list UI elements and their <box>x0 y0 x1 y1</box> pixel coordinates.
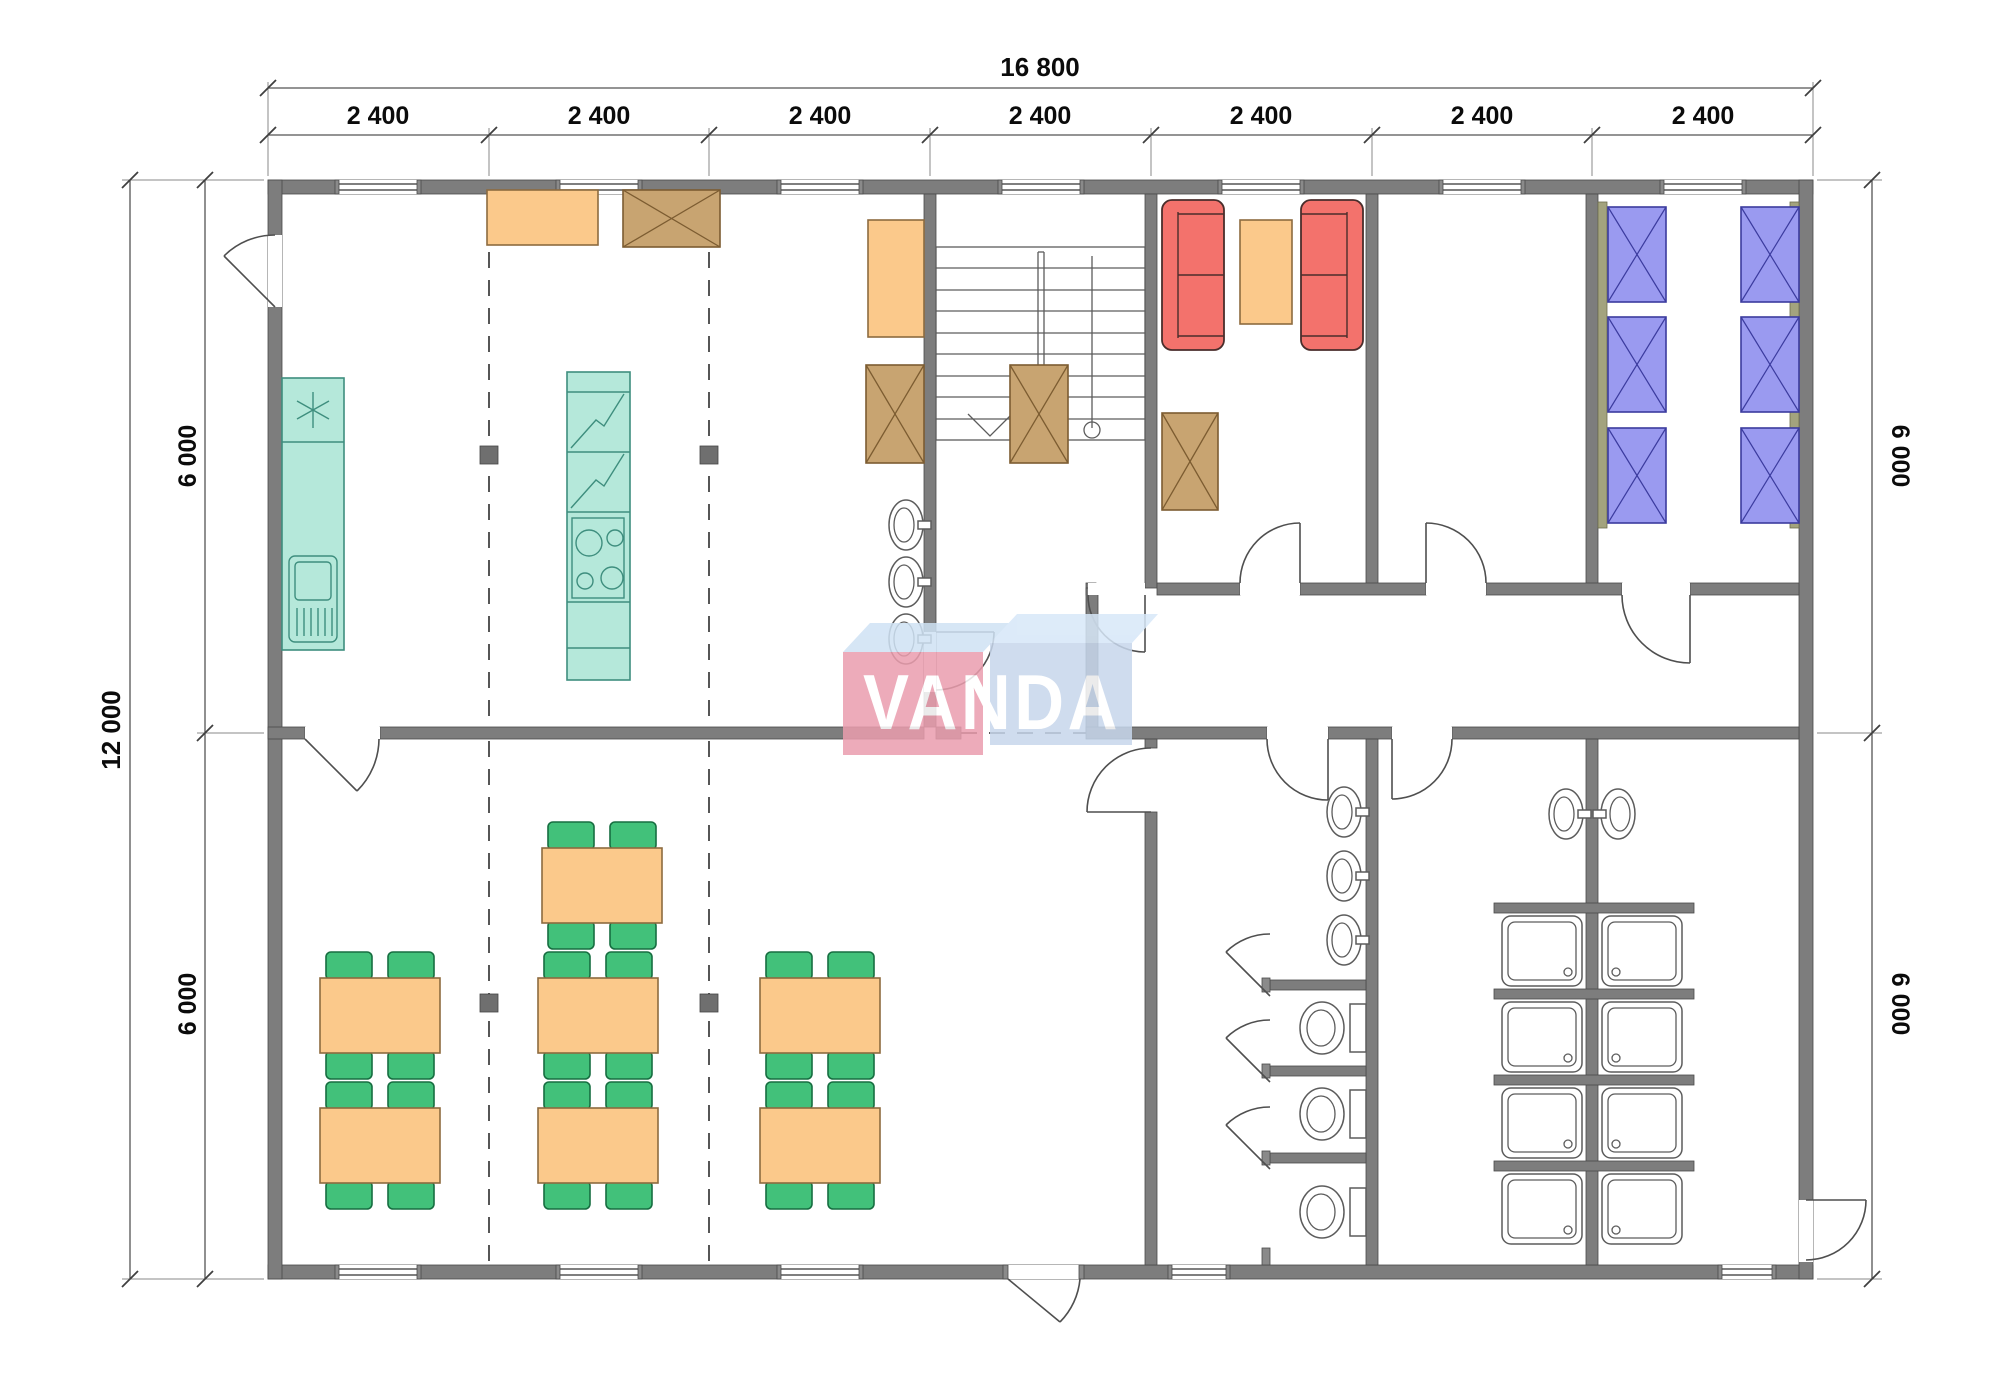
dining-table-set <box>542 822 662 949</box>
wall-lounge-room <box>1366 194 1378 588</box>
bed-icon <box>1608 428 1666 523</box>
door-kitchen-dining <box>305 727 380 791</box>
dining-table-set <box>320 952 440 1079</box>
dim-bay: 2 400 <box>1230 102 1293 130</box>
dining-table-set <box>760 952 880 1079</box>
window <box>998 180 1084 194</box>
column <box>700 994 718 1012</box>
wc-fixtures <box>1226 787 1369 1238</box>
bed-icon <box>1741 317 1799 412</box>
wash-basin-icon <box>1593 789 1635 839</box>
wall-wc-shower <box>1366 739 1378 1265</box>
kitchen-island <box>567 372 630 680</box>
window <box>1660 180 1746 194</box>
door-wc <box>1267 727 1328 800</box>
window <box>1718 1265 1776 1279</box>
dining-table-set <box>538 952 658 1079</box>
window <box>335 180 421 194</box>
shower-partition-2 <box>1494 989 1694 999</box>
shower-partition-1 <box>1494 903 1694 913</box>
window <box>1168 1265 1230 1279</box>
wall-corridor-north-b <box>1157 583 1240 595</box>
window <box>335 1265 421 1279</box>
dim-right-lower: 6 000 <box>1886 973 1914 1036</box>
toilet-icon <box>1300 1002 1366 1054</box>
toilet-icon <box>1300 1088 1366 1140</box>
wash-basin-icon <box>1327 915 1369 965</box>
dining-table-set <box>760 1082 880 1209</box>
kitchen-furniture <box>282 190 924 680</box>
dim-left-lower: 6 000 <box>174 973 202 1036</box>
mid-wall-a <box>268 727 305 739</box>
dim-bay: 2 400 <box>1672 102 1735 130</box>
dining-table-set <box>320 1082 440 1209</box>
dim-bay: 2 400 <box>347 102 410 130</box>
wall-vestibule-wc-upper <box>1145 739 1157 748</box>
wash-basin-icon <box>1327 787 1369 837</box>
wall-corridor-north-c <box>1300 583 1426 595</box>
entry-door-kitchen <box>224 235 282 307</box>
outer-wall-right <box>1799 180 1813 1279</box>
mid-wall-f <box>1452 727 1799 739</box>
floor-plan-page: 16 800 2 400 2 400 2 400 2 400 2 400 2 4… <box>0 0 2000 1380</box>
dim-bay: 2 400 <box>1451 102 1514 130</box>
bed-icon <box>1608 317 1666 412</box>
bed-icon <box>1741 428 1799 523</box>
shower-partition-4 <box>1494 1161 1694 1171</box>
column <box>480 446 498 464</box>
wash-basin-icon <box>1549 789 1591 839</box>
dim-left-total: 12 000 <box>96 690 126 770</box>
door-vestibule-wc <box>1087 748 1151 812</box>
kitchen-counter-sink-icon <box>282 378 344 650</box>
dim-bay: 2 400 <box>568 102 631 130</box>
wall-stairhall-lounge <box>1145 194 1157 588</box>
window <box>1218 180 1304 194</box>
window <box>556 1265 642 1279</box>
watermark-text: VANDA <box>863 658 1121 746</box>
mid-wall-e <box>1328 727 1392 739</box>
door-lounge <box>1240 523 1300 595</box>
column <box>700 446 718 464</box>
door-bedroom <box>1622 583 1690 663</box>
toilet-icon <box>1300 1186 1366 1238</box>
door-spare-room <box>1426 523 1486 595</box>
main-entrance-door <box>1003 1265 1084 1322</box>
storage-box <box>623 190 720 247</box>
wall-corridor-north-e <box>1690 583 1799 595</box>
stair-down-arrow-icon <box>968 414 1012 436</box>
column <box>480 994 498 1012</box>
stall-partition-3 <box>1270 1153 1366 1163</box>
window <box>1439 180 1525 194</box>
coffee-table <box>1240 220 1292 324</box>
bedroom-furniture <box>1608 207 1799 523</box>
bed-icon <box>1741 207 1799 302</box>
worktable <box>487 190 598 245</box>
dim-right-upper: 6 000 <box>1886 425 1914 488</box>
vanda-watermark: VANDA <box>843 614 1158 755</box>
storage-box <box>866 365 924 463</box>
shower-partition-3 <box>1494 1075 1694 1085</box>
sofa-icon <box>1162 200 1224 350</box>
floor-plan-drawing: 16 800 2 400 2 400 2 400 2 400 2 400 2 4… <box>0 0 2000 1380</box>
sofa-icon <box>1301 200 1363 350</box>
dining-table-set <box>538 1082 658 1209</box>
dim-bay: 2 400 <box>789 102 852 130</box>
window <box>777 180 863 194</box>
stall-partition-2 <box>1270 1066 1366 1076</box>
door-shower-room <box>1392 727 1452 799</box>
wall-room-bedroom <box>1586 194 1598 588</box>
stall-partition-1 <box>1270 980 1366 990</box>
wash-basin-icon <box>1327 851 1369 901</box>
side-exit-door <box>1799 1200 1866 1262</box>
wall-corridor-north-d <box>1486 583 1622 595</box>
bed-icon <box>1608 207 1666 302</box>
dim-top-total: 16 800 <box>1000 52 1080 82</box>
mid-wall-b <box>380 727 924 739</box>
dim-bay: 2 400 <box>1009 102 1072 130</box>
dim-left-upper: 6 000 <box>174 425 202 488</box>
side-table <box>868 220 924 337</box>
storage-box <box>1162 413 1218 510</box>
wall-vestibule-wc-lower <box>1145 812 1157 1265</box>
storage-box <box>1010 365 1068 463</box>
window <box>777 1265 863 1279</box>
